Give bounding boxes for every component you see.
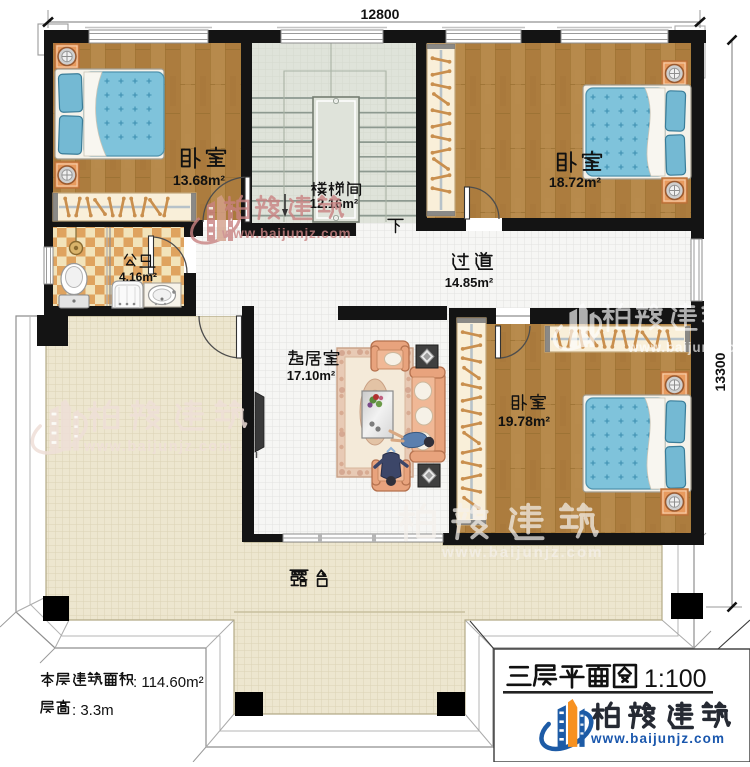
svg-text:12800: 12800 [361,6,400,22]
svg-text:www.baijunjz.com: www.baijunjz.com [590,731,725,746]
svg-text:www.baijunjz.com: www.baijunjz.com [627,340,750,355]
svg-text:18.72m²: 18.72m² [549,174,601,190]
svg-text:: 114.60m²: : 114.60m² [133,674,204,691]
svg-text:14.85m²: 14.85m² [445,275,494,290]
svg-text:19.78m²: 19.78m² [498,413,550,429]
svg-text:1:100: 1:100 [644,665,707,693]
svg-text:17.10m²: 17.10m² [287,368,336,383]
svg-text:www.baijunjz.com: www.baijunjz.com [441,544,603,561]
svg-text:4.16m²: 4.16m² [119,270,157,284]
svg-text:13300: 13300 [712,352,728,391]
svg-text:www.baijunjz.com: www.baijunjz.com [83,439,233,455]
svg-text:www.baijunjz.com: www.baijunjz.com [221,226,351,241]
svg-text:: 3.3m: : 3.3m [72,702,114,719]
svg-text:13.68m²: 13.68m² [173,172,225,188]
